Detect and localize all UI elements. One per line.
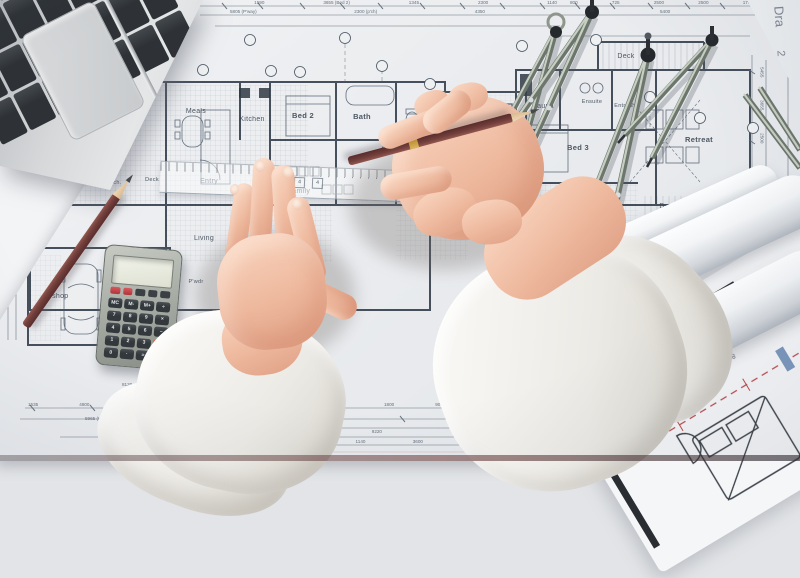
pencil-lead <box>530 107 540 114</box>
desk-edge-strip <box>0 455 800 461</box>
compass-arm-far-right <box>744 87 800 168</box>
